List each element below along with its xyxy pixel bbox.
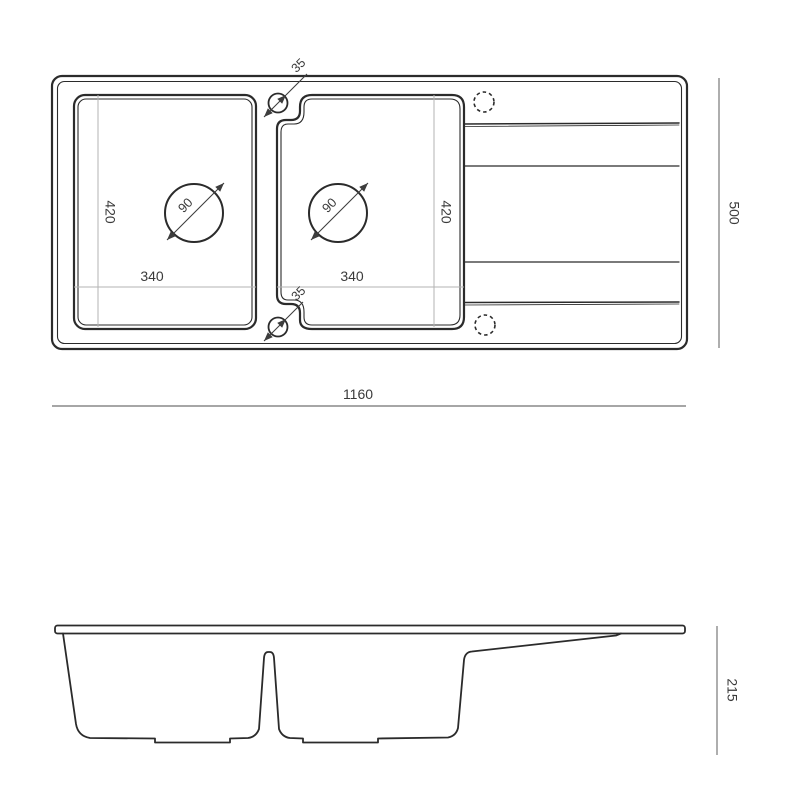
drawing-canvas: 420 340 420 340 90 90 35 35 — [0, 0, 800, 800]
sink-technical-drawing: 420 340 420 340 90 90 35 35 — [0, 0, 800, 800]
dim-bowl-right-width-label: 340 — [340, 268, 364, 284]
side-rim-bar — [55, 626, 685, 634]
drainboard-groove-4 — [464, 302, 679, 303]
top-view: 420 340 420 340 90 90 35 35 — [52, 56, 742, 406]
overflow-hole-top-leader — [264, 95, 286, 117]
dim-bowl-right-length-label: 420 — [438, 200, 454, 224]
sink-outer-outline — [52, 76, 687, 349]
dim-bowl-left-length-label: 420 — [102, 200, 118, 224]
overflow-hole-top-leader-tail — [286, 74, 307, 95]
drainboard — [464, 92, 679, 335]
tap-hole-top-circle — [474, 92, 494, 112]
dim-depth-label: 500 — [726, 201, 742, 225]
drainboard-groove-1-edge — [464, 125, 679, 127]
dim-overflow-top-label: 35 — [289, 56, 309, 76]
drainboard-groove-4-edge — [464, 304, 679, 305]
dim-drain-left-label: 90 — [175, 195, 196, 216]
overflow-hole-bottom-leader — [264, 319, 286, 341]
dim-drain-right-label: 90 — [319, 195, 340, 216]
dim-height-label: 215 — [724, 678, 740, 702]
dim-bowl-left-width-label: 340 — [140, 268, 164, 284]
side-view: 215 — [55, 626, 740, 756]
tap-hole-bottom-circle — [475, 315, 495, 335]
dim-width-label: 1160 — [343, 386, 373, 402]
bowl-right-inner-line — [281, 99, 460, 325]
side-profile-outline — [63, 634, 621, 743]
drainboard-groove-1 — [464, 123, 679, 124]
